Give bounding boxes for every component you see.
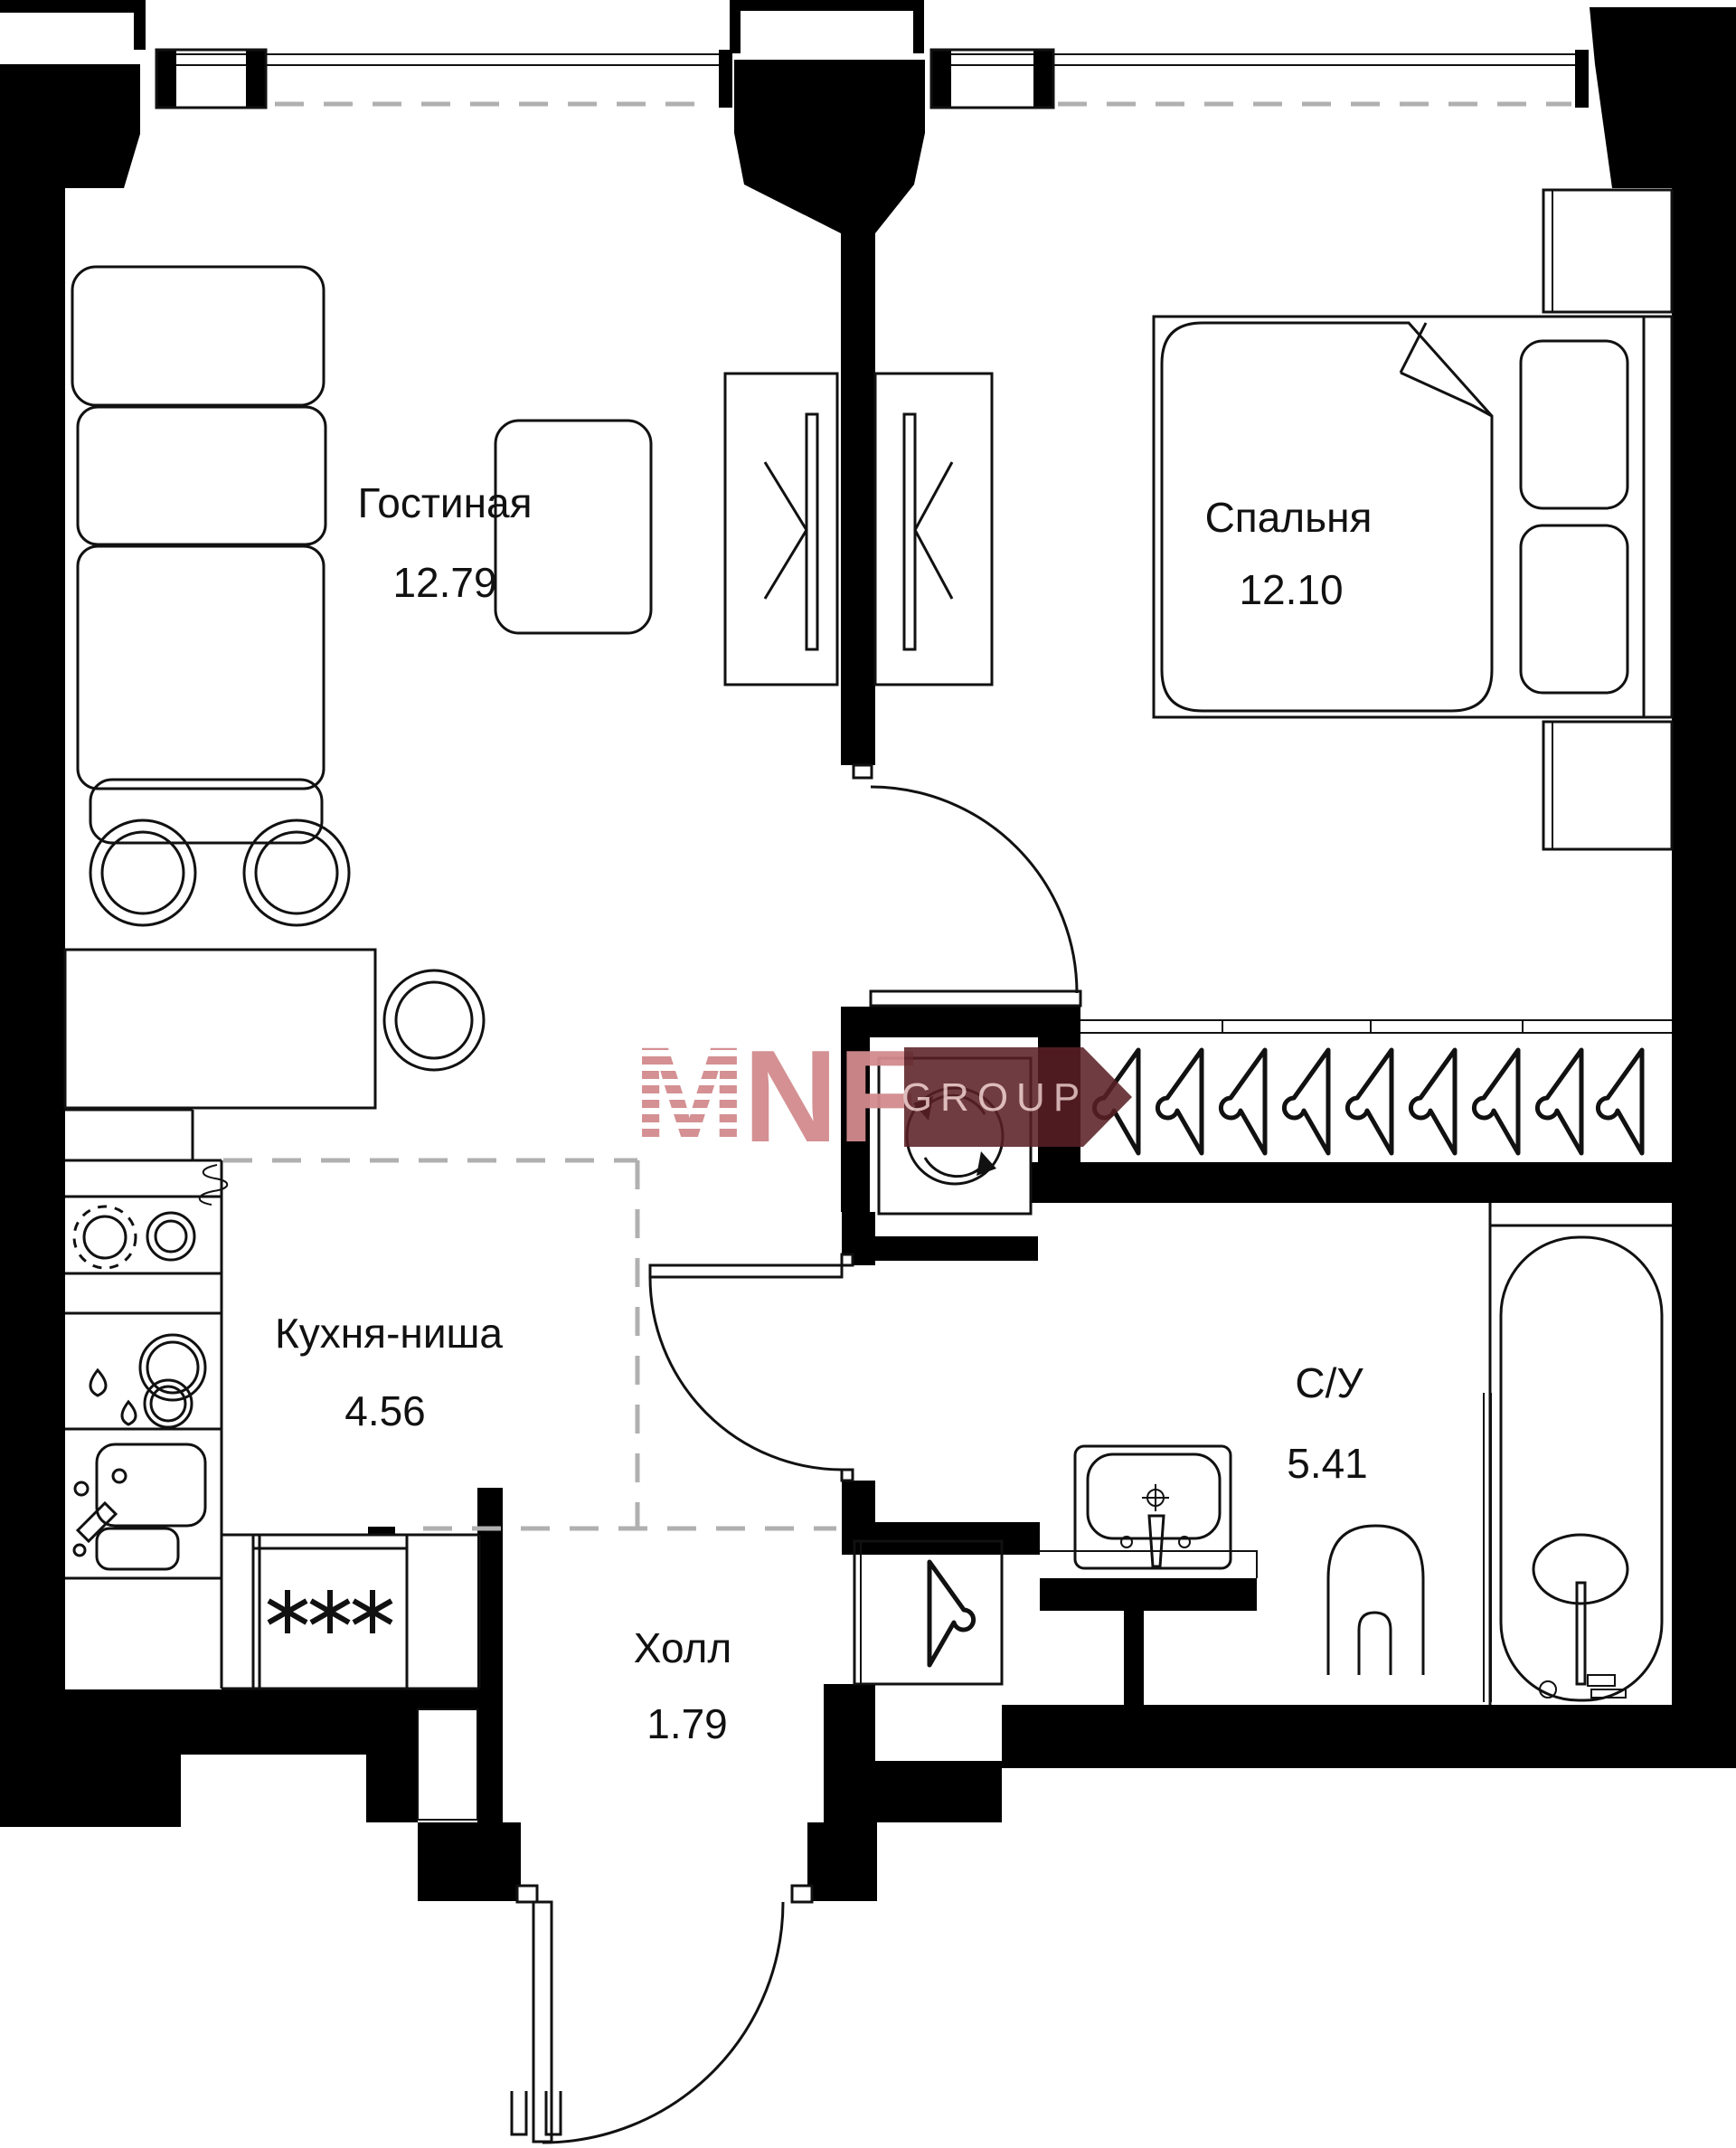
tv-screen: [807, 414, 817, 649]
counter: [65, 1110, 222, 1578]
hanger-icon: [929, 1562, 974, 1665]
label-living-area: 12.79: [392, 559, 496, 606]
label-bedroom-name: Спальня: [1205, 494, 1373, 541]
facade-glazing-left: [266, 54, 719, 65]
chair: [384, 970, 484, 1070]
kitchen-sink: [74, 1444, 205, 1569]
shaft-slot: [418, 1709, 477, 1820]
sofa: [72, 267, 325, 843]
label-living-name: Гостиная: [357, 479, 532, 526]
bathroom-sink: [1040, 1446, 1257, 1578]
dishwasher: [90, 1335, 205, 1427]
label-kitchen-name: Кухня-ниша: [275, 1310, 503, 1357]
wardrobe-rail: [1080, 1020, 1672, 1033]
fridge: [222, 1535, 479, 1689]
chair: [90, 820, 195, 925]
pillow: [1521, 525, 1627, 693]
floorplan-svg: Гостиная 12.79 Спальня 12.10 Кухня-ниша …: [0, 0, 1736, 2148]
coffee-table: [495, 421, 651, 633]
hob: [74, 1206, 194, 1268]
bedroom-door: [854, 765, 1080, 1006]
label-kitchen-area: 4.56: [344, 1387, 426, 1434]
facade-glazing-right: [1053, 54, 1575, 65]
watermark-logo-icon: M: [633, 1018, 746, 1170]
hanger-icons: [1094, 1050, 1642, 1153]
nightstand: [1543, 190, 1672, 312]
watermark-suffix: GROUP: [901, 1075, 1088, 1120]
label-bath-area: 5.41: [1287, 1440, 1368, 1487]
doors: [512, 765, 1080, 2143]
dining-table-and-chairs: [65, 820, 484, 1108]
freezer-stars: [269, 1590, 392, 1633]
chair: [244, 820, 349, 925]
floorplan: Гостиная 12.79 Спальня 12.10 Кухня-ниша …: [0, 0, 1736, 2148]
nightstand: [1543, 722, 1672, 849]
vent-squiggle: [200, 1165, 228, 1205]
hall-coat-niche: [854, 1541, 1002, 1684]
toilet: [1328, 1526, 1423, 1675]
bathroom-door: [650, 1254, 853, 1481]
label-bedroom-area: 12.10: [1239, 566, 1343, 613]
bathtub: [1484, 1203, 1672, 1705]
label-hall-area: 1.79: [646, 1700, 728, 1747]
pillow: [1521, 341, 1627, 508]
entry-door: [512, 1886, 812, 2143]
dining-table: [65, 950, 375, 1108]
tv-screen: [904, 414, 915, 649]
watermark-brand: NF: [743, 1023, 918, 1169]
label-hall-name: Холл: [634, 1624, 731, 1671]
label-bath-name: С/У: [1295, 1359, 1363, 1406]
wardrobe: [1080, 1020, 1672, 1153]
